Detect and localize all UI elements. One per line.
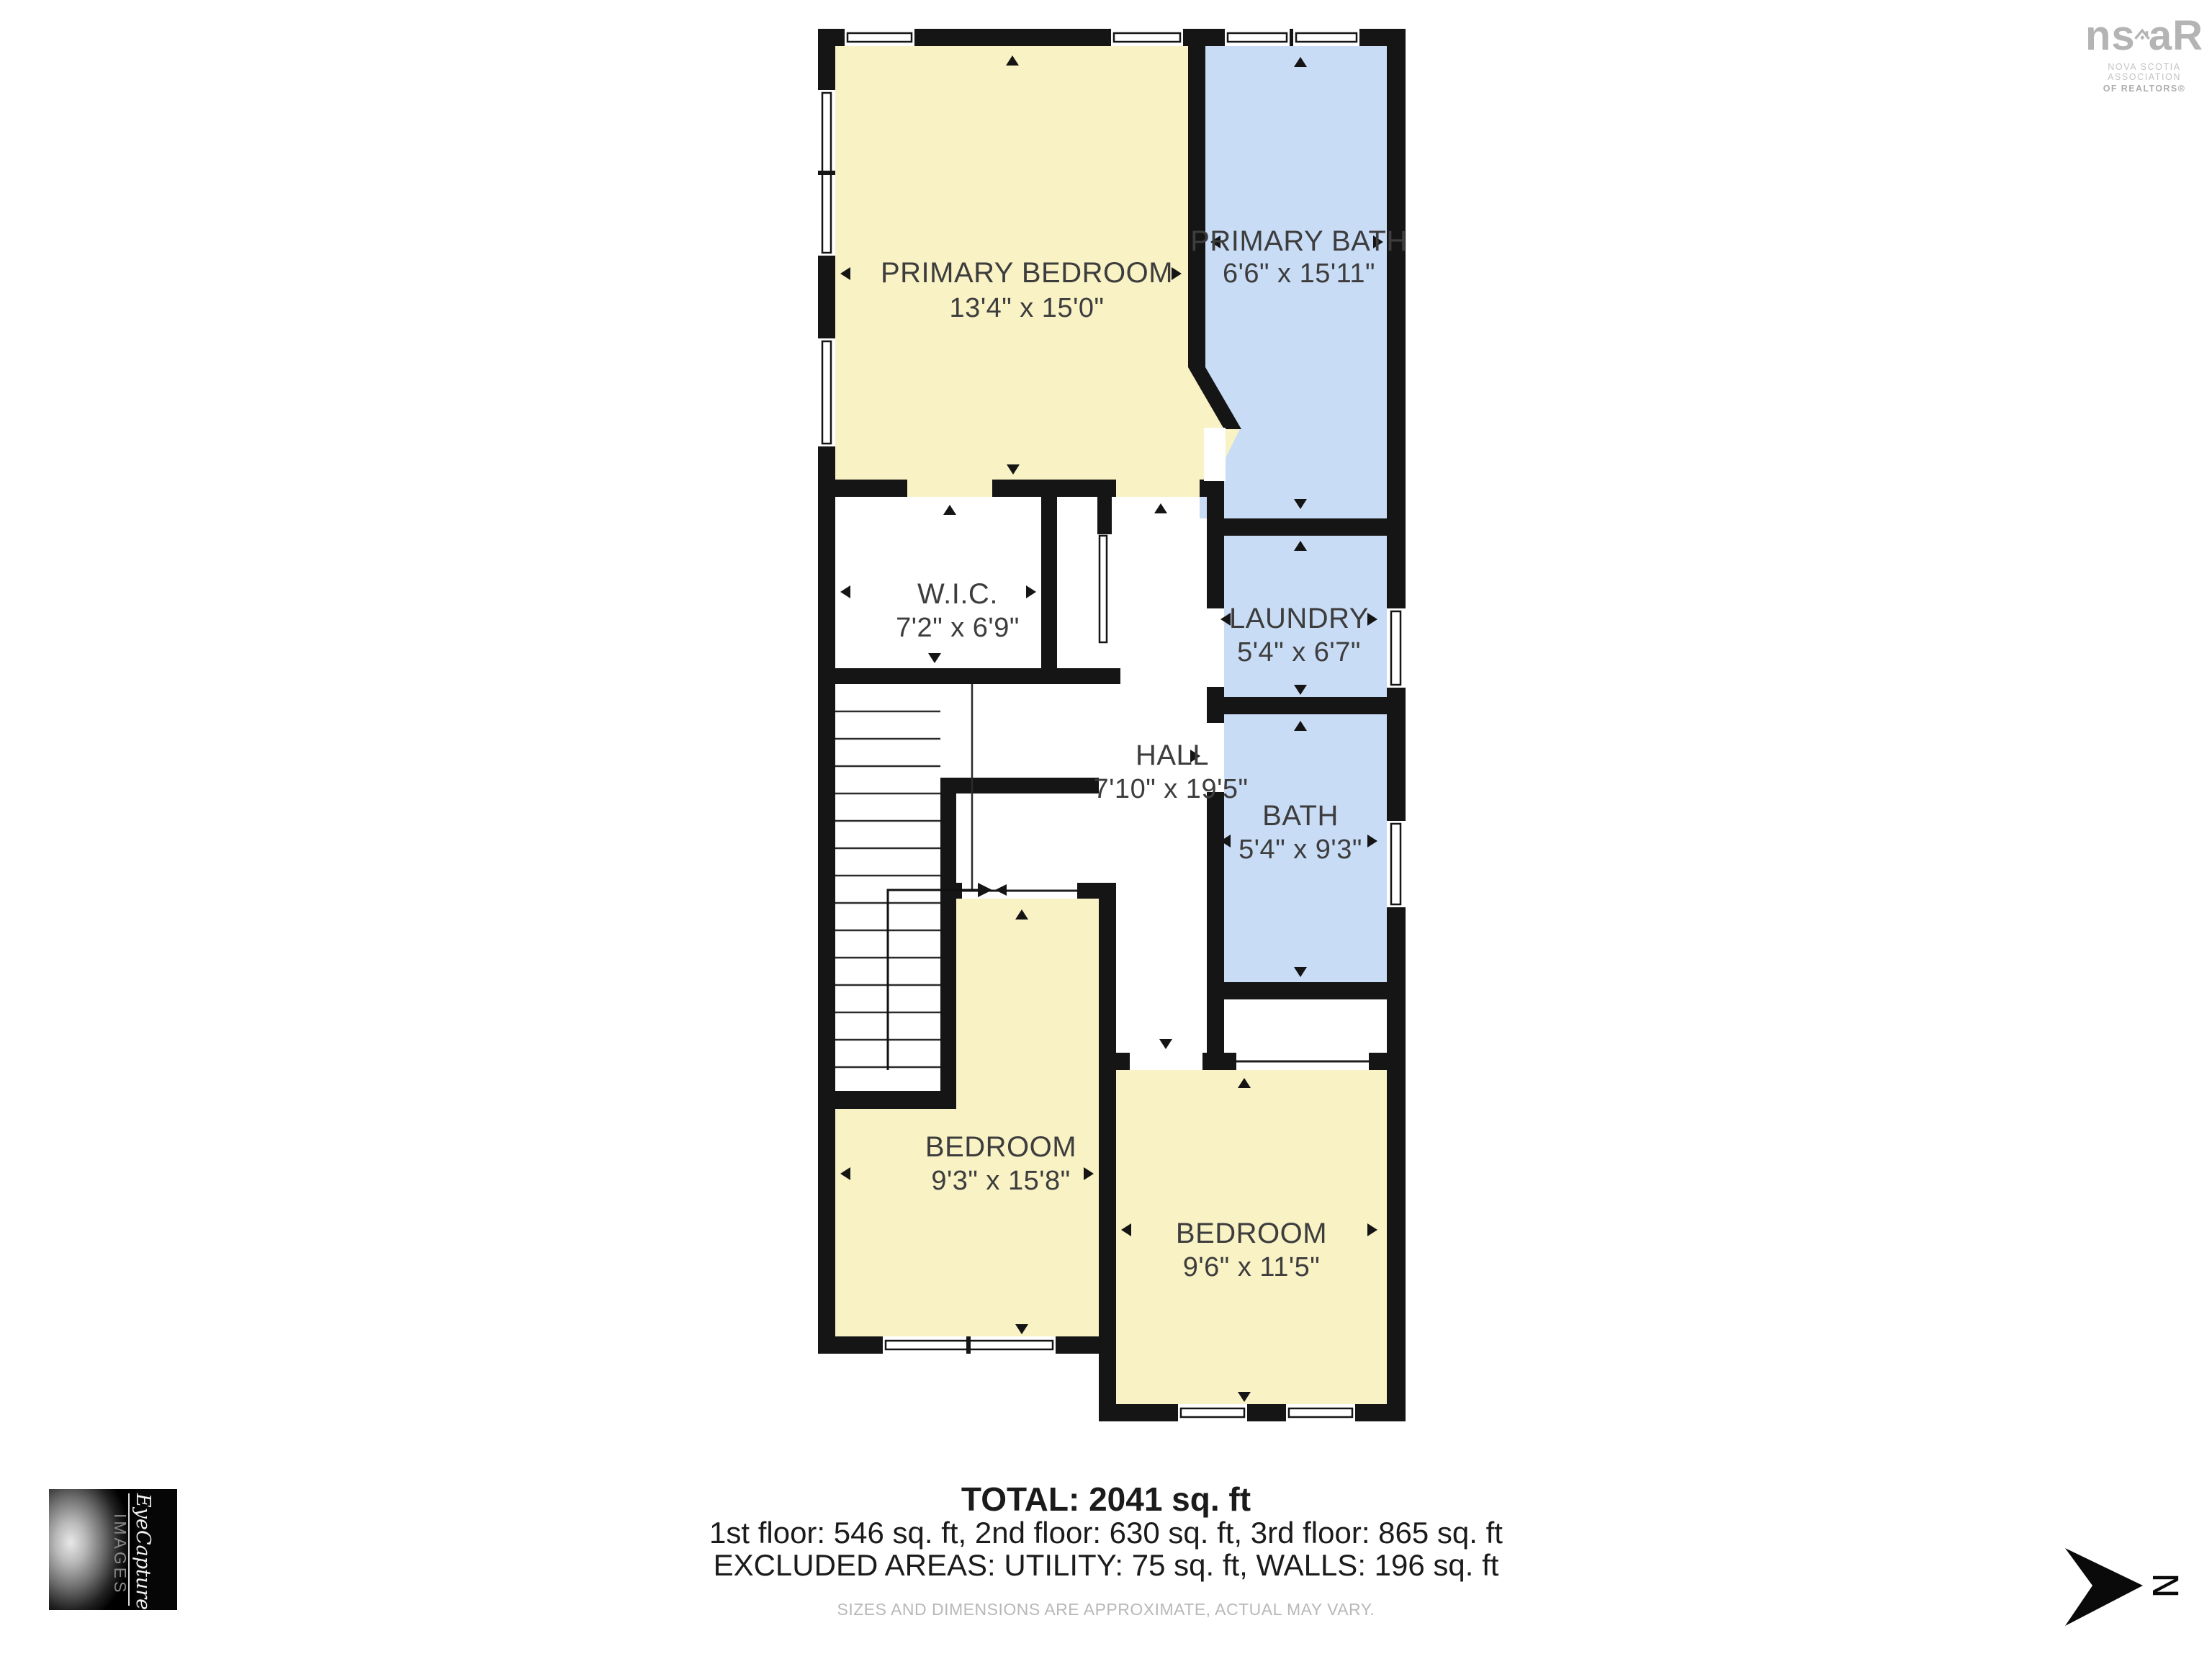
disclaimer-text: SIZES AND DIMENSIONS ARE APPROXIMATE, AC… — [0, 1600, 2212, 1619]
nsar-logo-line1: NOVA SCOTIA ASSOCIATION — [2085, 62, 2203, 82]
window — [845, 29, 914, 46]
room-dims: 5'4" x 6'7" — [1237, 637, 1361, 667]
north-arrow-icon — [2056, 1545, 2150, 1632]
floor-areas-text: 1st floor: 546 sq. ft, 2nd floor: 630 sq… — [0, 1516, 2212, 1549]
window — [1293, 29, 1359, 46]
nsar-logo-suffix: aR — [2149, 17, 2203, 55]
total-area-text: TOTAL: 2041 sq. ft — [0, 1482, 2212, 1516]
compass: N — [2056, 1545, 2200, 1646]
house-roof-icon — [2134, 17, 2150, 55]
room-label: W.I.C. — [917, 578, 998, 610]
excluded-areas-text: EXCLUDED AREAS: UTILITY: 75 sq. ft, WALL… — [0, 1549, 2212, 1581]
room-dims: 7'10" x 19'5" — [1094, 774, 1249, 804]
room-dims: 5'4" x 9'3" — [1238, 835, 1362, 865]
room-dims: 13'4" x 15'0" — [950, 293, 1105, 323]
room-dims: 7'2" x 6'9" — [896, 613, 1020, 643]
area-summary: TOTAL: 2041 sq. ft 1st floor: 546 sq. ft… — [0, 1482, 2212, 1619]
nsar-logo: ns aR NOVA SCOTIA ASSOCIATION OF REALTOR… — [2085, 17, 2203, 94]
room-label: LAUNDRY — [1229, 603, 1369, 634]
eyecapture-images-text: IMAGES — [110, 1514, 130, 1595]
nsar-logo-line2: OF REALTORS® — [2085, 84, 2203, 94]
window — [1387, 608, 1406, 688]
window — [1286, 1404, 1355, 1421]
room-dims: 9'6" x 11'5" — [1183, 1252, 1320, 1282]
window — [1111, 29, 1183, 46]
window — [1225, 29, 1290, 46]
room-label: HALL — [1136, 739, 1209, 771]
window — [883, 1336, 1056, 1354]
nsar-logo-wordmark: ns aR — [2085, 17, 2203, 55]
room-label: PRIMARY BATH — [1190, 225, 1406, 257]
room-label: BEDROOM — [1176, 1218, 1327, 1249]
floorplan-page: { "colors": { "wall": "#151515", "room_b… — [0, 0, 2212, 1659]
floorplan-drawing: PRIMARY BEDROOM 13'4" x 15'0" PRIMARY BA… — [818, 29, 1406, 1421]
window — [818, 90, 835, 256]
eyecapture-logo: IMAGES EyeCapture — [49, 1489, 177, 1610]
room-dims: 6'6" x 15'11" — [1223, 258, 1375, 289]
north-label: N — [2144, 1573, 2185, 1599]
door-opening-primary-bath — [1204, 428, 1226, 481]
window — [818, 338, 835, 446]
room-dims: 9'3" x 15'8" — [931, 1166, 1070, 1196]
eyecapture-script-text: EyeCapture — [128, 1493, 154, 1606]
window — [1387, 821, 1406, 907]
nsar-logo-prefix: ns — [2085, 17, 2136, 55]
room-label: BATH — [1262, 800, 1339, 832]
room-label: PRIMARY BEDROOM — [881, 257, 1173, 289]
room-label: BEDROOM — [925, 1131, 1076, 1163]
door-leaf — [1100, 536, 1107, 642]
window — [1178, 1404, 1247, 1421]
